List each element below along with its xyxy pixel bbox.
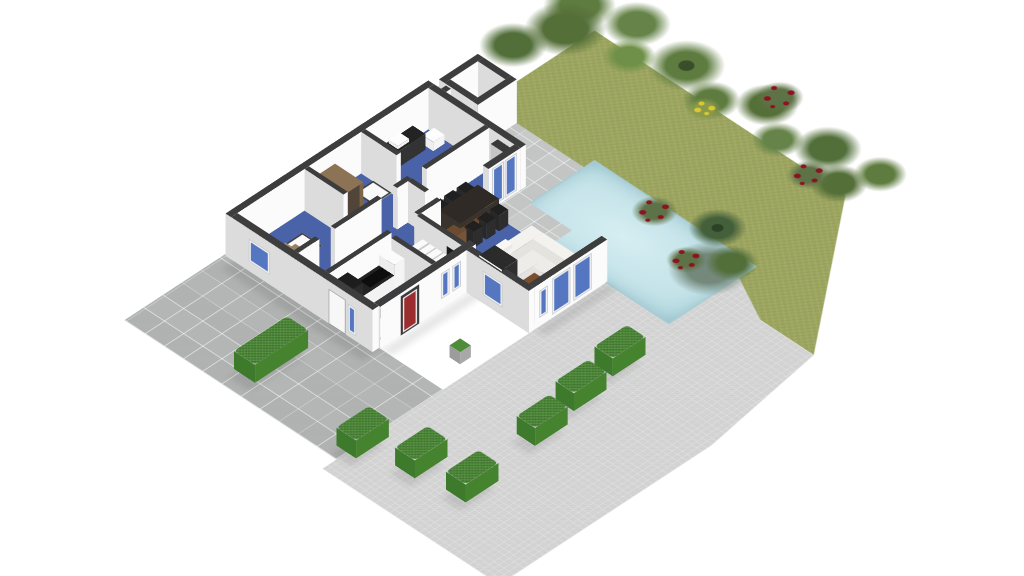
vestibule-wall bbox=[439, 54, 484, 83]
window bbox=[442, 269, 449, 298]
patio-window bbox=[553, 268, 570, 314]
hedge bbox=[595, 325, 646, 358]
patio-window bbox=[574, 254, 591, 300]
isometric-scene bbox=[0, 0, 1024, 576]
planter bbox=[450, 338, 471, 352]
tall-glass-pane bbox=[505, 154, 516, 197]
window bbox=[348, 305, 355, 335]
window bbox=[483, 272, 501, 307]
window bbox=[540, 286, 547, 316]
floorplan-render-stage bbox=[0, 0, 1024, 576]
window bbox=[249, 240, 269, 274]
window bbox=[453, 262, 460, 291]
hedge bbox=[395, 426, 447, 460]
